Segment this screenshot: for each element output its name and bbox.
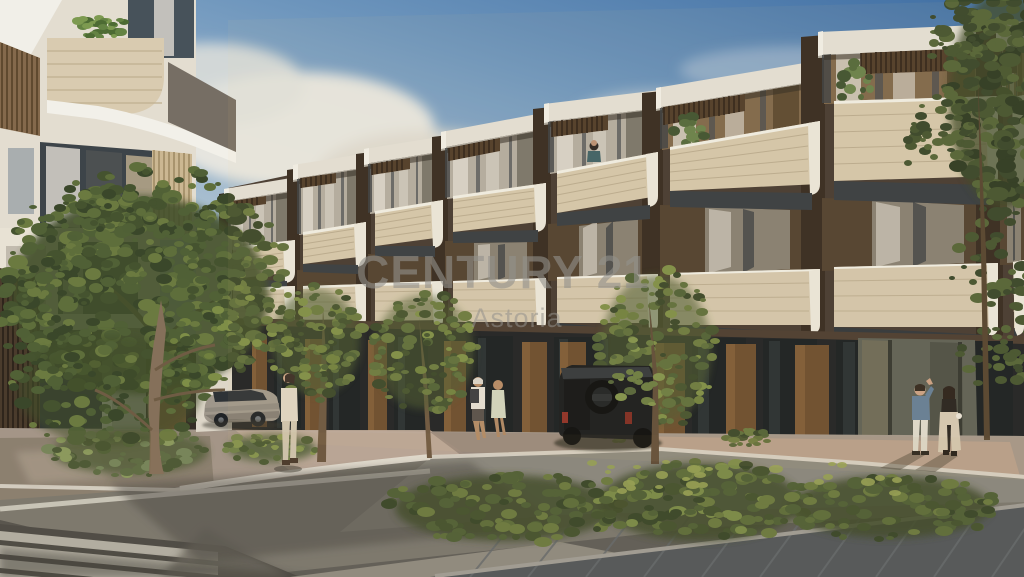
svg-text:Astoria: Astoria: [471, 303, 562, 333]
svg-text:CENTURY 21: CENTURY 21: [356, 246, 650, 298]
